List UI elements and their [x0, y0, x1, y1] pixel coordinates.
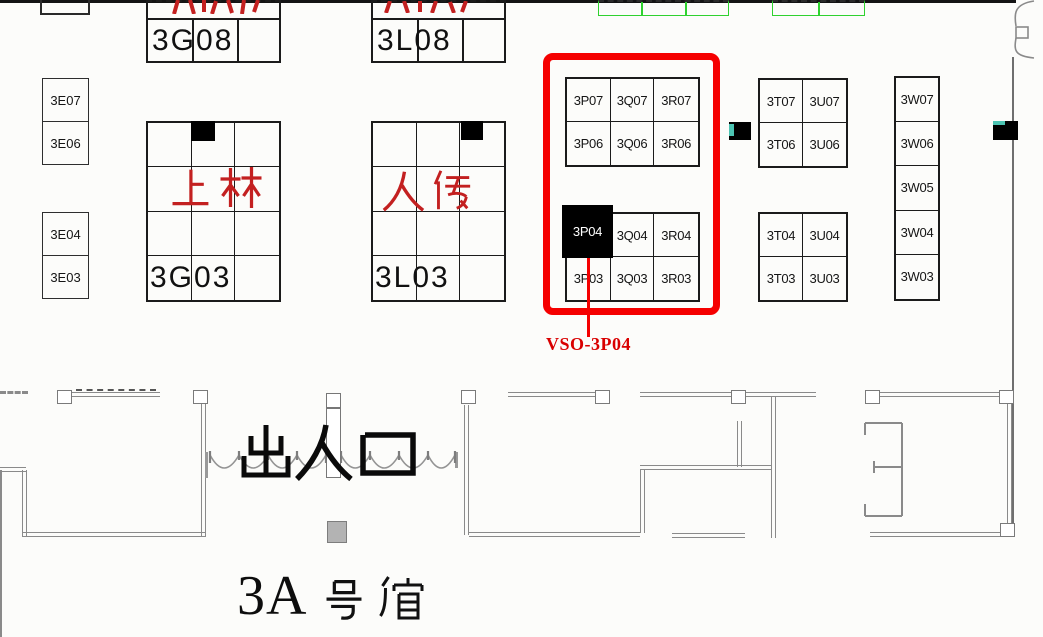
red-overlay-text-renchuan	[379, 167, 427, 215]
post-divider	[327, 407, 340, 409]
wall-segment	[469, 532, 640, 537]
callout-line	[587, 257, 590, 337]
green-stand-divider	[685, 2, 687, 15]
hall-name: 3A	[237, 568, 427, 624]
black-square-marker	[191, 121, 215, 141]
green-stand-group-1	[598, 0, 729, 16]
wall-segment	[464, 405, 469, 535]
booth-cell	[373, 256, 417, 300]
booth-cell	[373, 123, 417, 167]
booth-cell	[460, 212, 504, 256]
hall-name-suffix-hao	[321, 576, 367, 624]
floor-plan: 3E07 3E06 3E04 3E03 3G08 3L08 3G03	[0, 0, 1043, 637]
red-overlay-text-shanglin-2	[215, 163, 267, 213]
bench-wall	[672, 533, 745, 538]
booth-3T06: 3T06	[760, 123, 803, 166]
booth-3W05: 3W05	[896, 166, 938, 210]
booth-3W06: 3W06	[896, 122, 938, 166]
stairs-icon	[864, 420, 910, 519]
booth-cell	[417, 256, 461, 300]
entrance-label	[241, 423, 421, 485]
booth-label-3G08: 3G08	[152, 24, 233, 58]
selected-booth-3P04: 3P04	[562, 205, 613, 258]
red-text-fragment-above-3G08	[170, 0, 268, 14]
wall-post	[461, 390, 476, 404]
booth-3E06: 3E06	[43, 122, 88, 165]
booth-block-3E04-3E03: 3E04 3E03	[42, 212, 89, 299]
green-stand-divider	[818, 2, 820, 15]
booth-cell	[192, 256, 236, 300]
black-marker-left	[729, 122, 751, 140]
booth-3W04: 3W04	[896, 211, 938, 255]
booth-3E07: 3E07	[43, 79, 88, 122]
booth-3U04: 3U04	[803, 214, 846, 257]
wall-dash-overlay	[76, 389, 156, 391]
wall-segment	[737, 421, 742, 467]
booth-label-3L08: 3L08	[377, 24, 452, 58]
wall-post	[999, 390, 1014, 404]
booth-cell	[148, 256, 192, 300]
booth-cell	[148, 212, 192, 256]
grid-line	[373, 18, 504, 20]
teal-accent	[729, 124, 734, 136]
wall-post	[193, 390, 208, 404]
black-square-marker	[461, 121, 483, 140]
wall-segment	[22, 470, 27, 536]
booth-3E03: 3E03	[43, 256, 88, 299]
wall-post	[865, 390, 880, 404]
wall-segment	[640, 392, 816, 397]
grid-line	[462, 18, 464, 63]
top-left-dashed-box	[40, 0, 90, 15]
booth-block-TU-upper: 3T07 3U07 3T06 3U06	[758, 78, 848, 168]
grid-line	[237, 18, 239, 63]
red-overlay-text-shanglin	[167, 165, 213, 211]
booth-block-3E07-3E06: 3E07 3E06	[42, 78, 89, 165]
wall-post	[1000, 523, 1015, 537]
wall-dash-segment	[0, 391, 28, 394]
red-highlight-frame	[543, 53, 720, 315]
wall-segment	[870, 532, 1001, 537]
booth-cell	[235, 212, 279, 256]
booth-3W03: 3W03	[896, 255, 938, 299]
wall-post	[595, 390, 610, 404]
booth-block-TU-lower: 3T04 3U04 3T03 3U03	[758, 212, 848, 302]
wall-segment	[771, 397, 776, 538]
floor-marker-square	[327, 521, 347, 543]
booth-column-3W: 3W07 3W06 3W05 3W04 3W03	[894, 76, 940, 301]
booth-cell	[148, 123, 192, 167]
booth-cell	[460, 256, 504, 300]
booth-3T04: 3T04	[760, 214, 803, 257]
wall-segment	[72, 392, 160, 397]
left-wall	[0, 470, 2, 637]
booth-3U06: 3U06	[803, 123, 846, 166]
wall-segment	[640, 470, 645, 533]
grid-line	[148, 18, 279, 20]
callout-label: VSO-3P04	[546, 334, 631, 355]
black-marker-right	[993, 121, 1018, 140]
wall-segment	[867, 392, 1012, 397]
door-swing-icon	[1002, 0, 1038, 60]
booth-3U03: 3U03	[803, 257, 846, 300]
hall-name-suffix-guan	[375, 574, 427, 624]
booth-3E04: 3E04	[43, 213, 88, 256]
wall-segment	[22, 532, 206, 537]
red-overlay-text-renchuan-2	[426, 165, 474, 215]
teal-accent	[993, 121, 1005, 125]
booth-3T03: 3T03	[760, 257, 803, 300]
green-stand-group-2	[772, 0, 865, 16]
booth-cell	[373, 212, 417, 256]
booth-3U07: 3U07	[803, 80, 846, 123]
booth-3W07: 3W07	[896, 78, 938, 122]
wall-segment	[508, 392, 596, 397]
wall-post	[57, 390, 72, 404]
booth-cell	[192, 212, 236, 256]
red-text-fragment-above-3L08	[380, 0, 478, 12]
booth-3T07: 3T07	[760, 80, 803, 123]
booth-cell	[235, 256, 279, 300]
booth-cell	[235, 123, 279, 167]
green-stand-divider	[641, 2, 643, 15]
wall-segment	[640, 465, 771, 470]
booth-cell	[417, 212, 461, 256]
wall-post	[731, 390, 746, 404]
booth-cell	[417, 123, 461, 167]
hall-name-prefix: 3A	[237, 568, 307, 624]
wall-segment	[1007, 398, 1012, 524]
